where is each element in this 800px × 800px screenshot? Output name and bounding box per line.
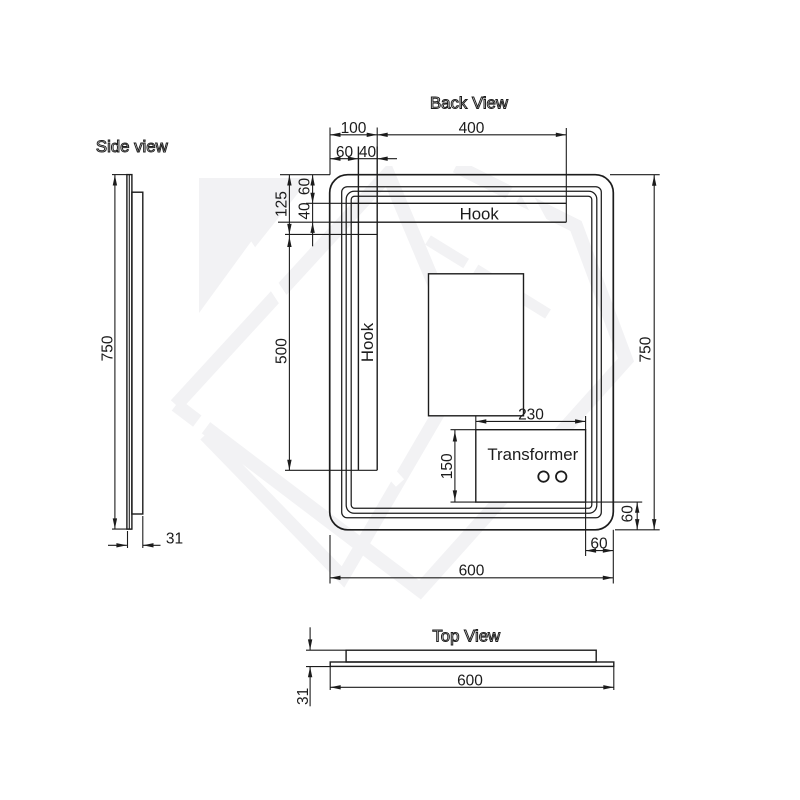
svg-text:Side view: Side view: [96, 137, 169, 156]
svg-text:Hook: Hook: [358, 322, 377, 362]
svg-text:Transformer: Transformer: [487, 445, 578, 464]
svg-text:Hook: Hook: [460, 204, 500, 223]
svg-text:60: 60: [590, 536, 608, 553]
svg-text:40: 40: [297, 202, 314, 220]
svg-text:Top View: Top View: [432, 627, 501, 646]
svg-text:150: 150: [439, 453, 456, 479]
svg-text:230: 230: [518, 406, 544, 423]
svg-text:60: 60: [297, 178, 314, 196]
svg-text:600: 600: [459, 563, 485, 580]
svg-text:125: 125: [274, 191, 291, 217]
svg-text:500: 500: [274, 338, 291, 364]
svg-text:400: 400: [459, 120, 485, 137]
svg-text:Back View: Back View: [430, 93, 509, 112]
svg-text:31: 31: [295, 688, 312, 705]
svg-text:40: 40: [359, 144, 377, 161]
svg-text:60: 60: [336, 144, 354, 161]
svg-text:750: 750: [638, 336, 655, 362]
svg-text:60: 60: [620, 505, 637, 523]
svg-text:31: 31: [166, 531, 183, 548]
svg-text:750: 750: [100, 335, 117, 361]
svg-text:100: 100: [341, 120, 367, 137]
svg-text:600: 600: [457, 672, 483, 689]
